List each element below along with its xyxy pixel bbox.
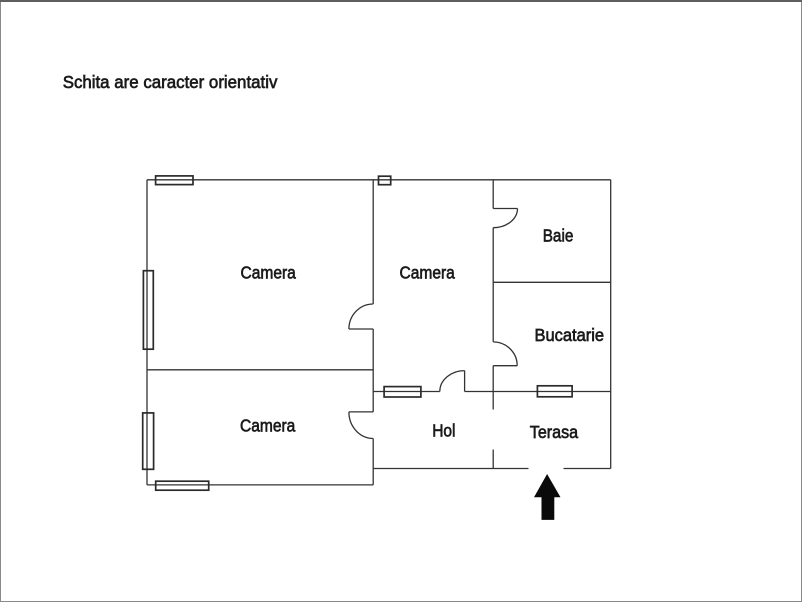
svg-text:Bucatarie: Bucatarie	[535, 325, 605, 345]
svg-text:Camera: Camera	[400, 262, 456, 282]
svg-text:Schita are caracter orientativ: Schita are caracter orientativ	[63, 72, 278, 92]
svg-text:Baie: Baie	[543, 226, 574, 246]
svg-text:Camera: Camera	[240, 415, 296, 435]
svg-text:Camera: Camera	[241, 262, 297, 282]
svg-text:Hol: Hol	[432, 421, 455, 441]
svg-text:Terasa: Terasa	[530, 422, 579, 442]
